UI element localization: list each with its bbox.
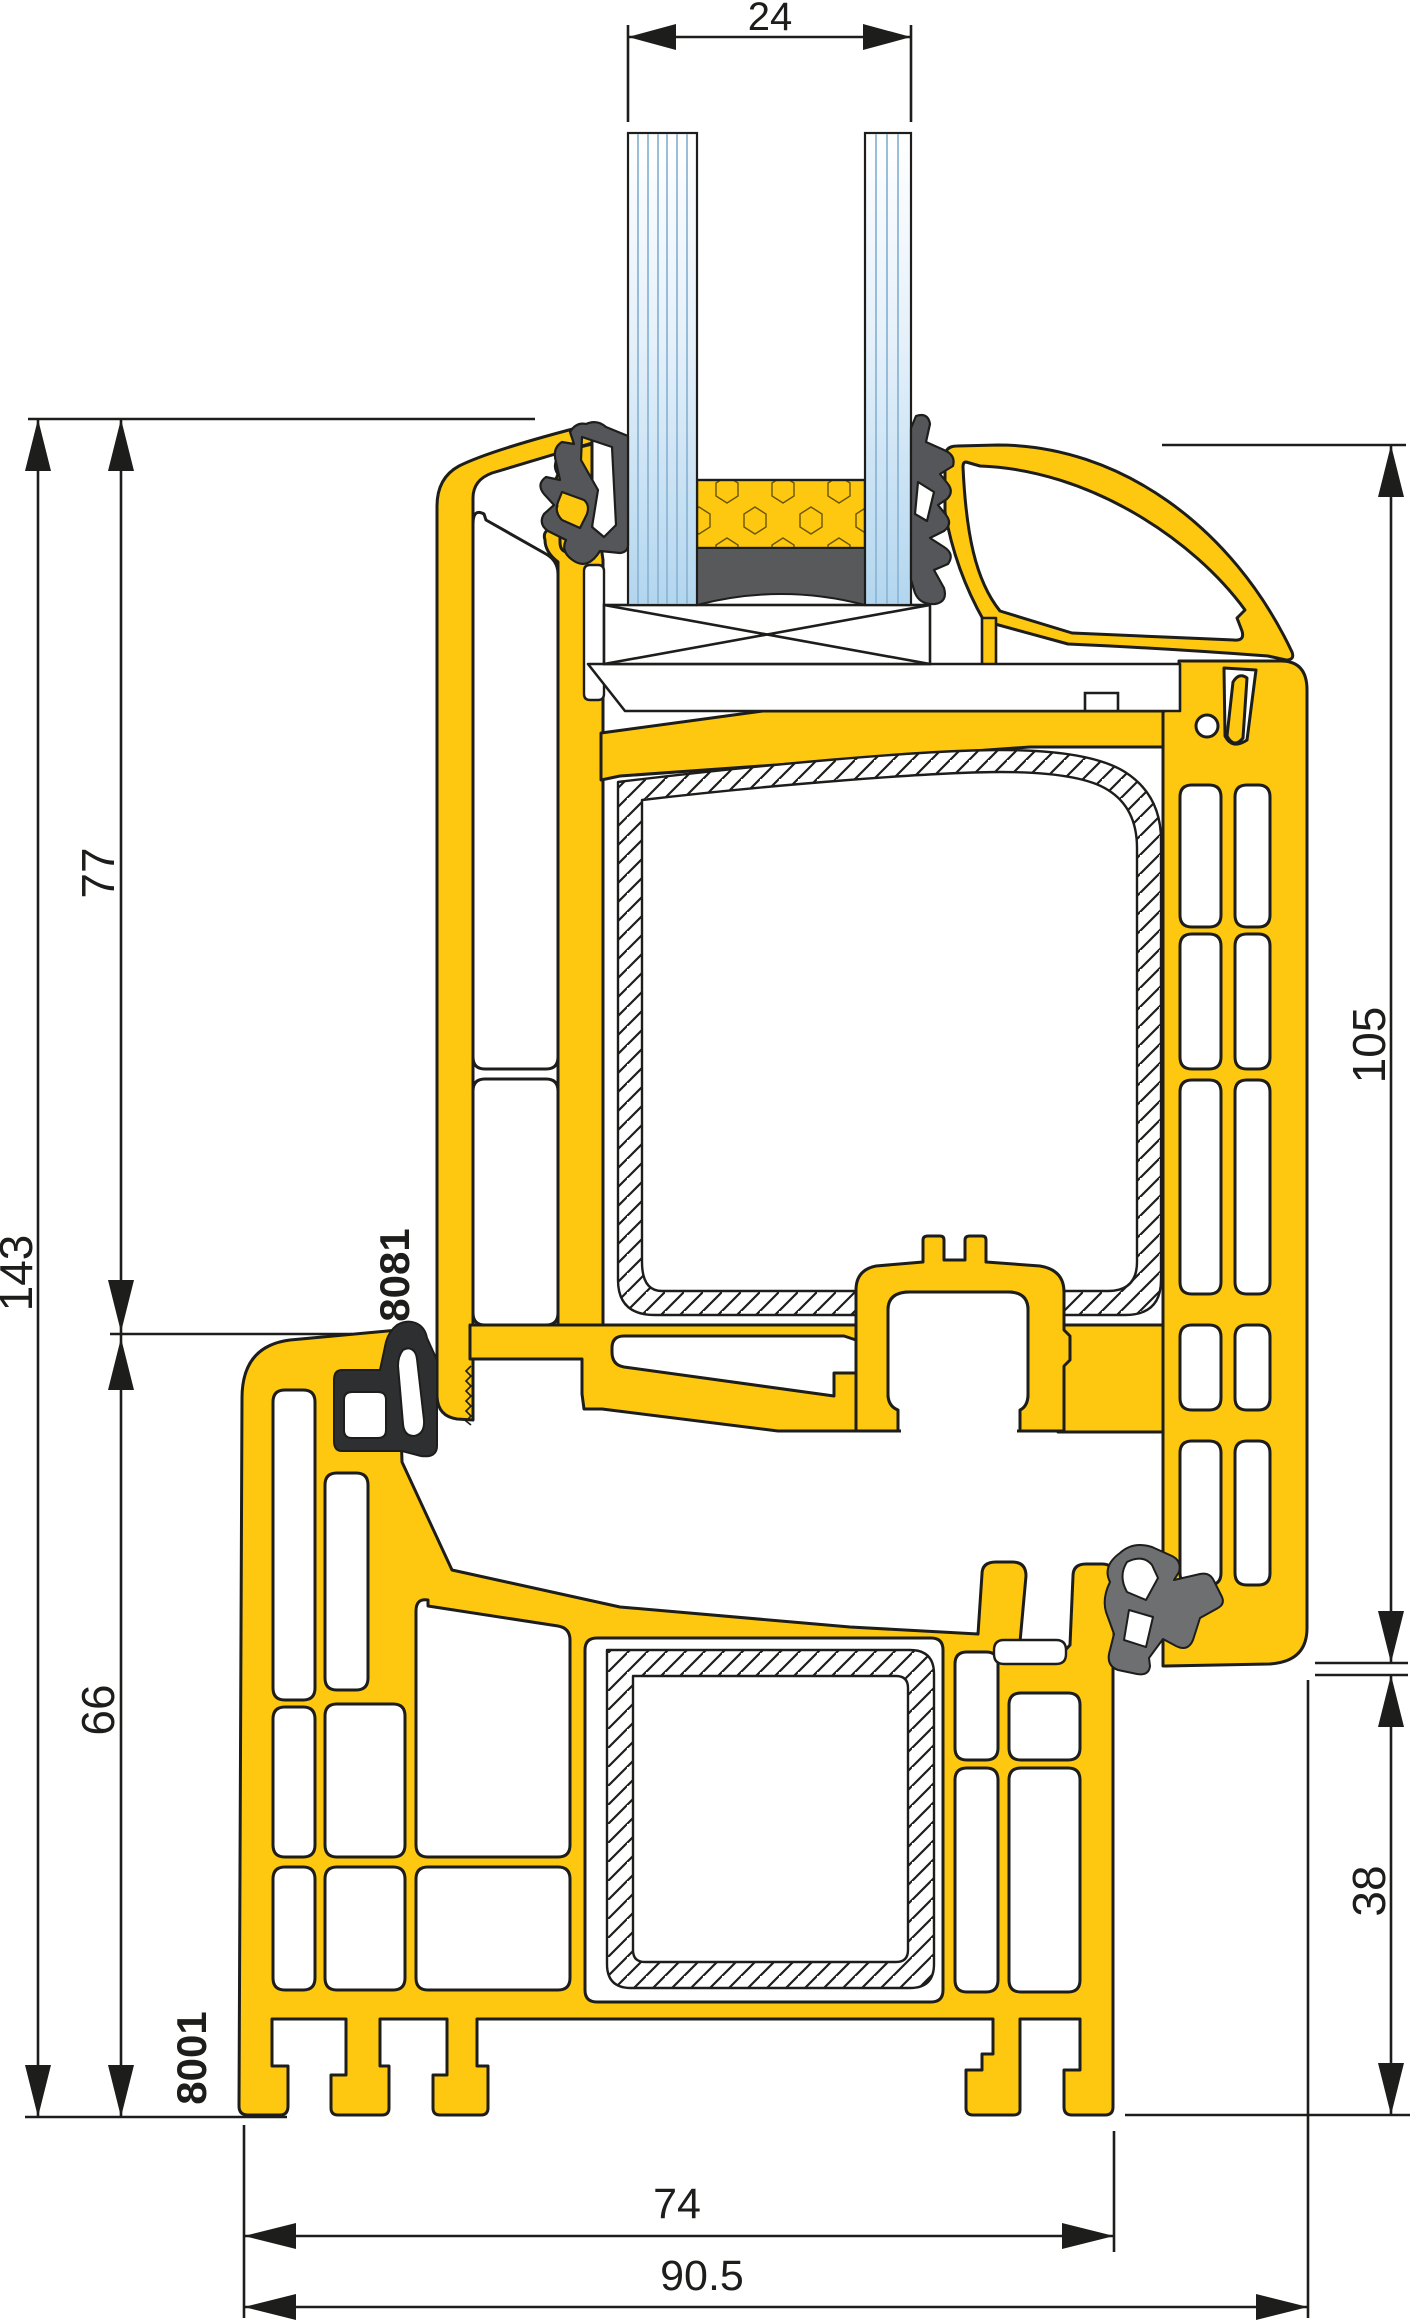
svg-text:74: 74: [653, 2180, 701, 2228]
svg-text:8081: 8081: [371, 1228, 418, 1321]
svg-text:66: 66: [72, 1684, 124, 1735]
svg-text:38: 38: [1343, 1865, 1395, 1916]
svg-text:143: 143: [0, 1235, 42, 1312]
svg-text:105: 105: [1343, 1007, 1395, 1084]
svg-text:24: 24: [748, 0, 793, 39]
svg-text:90.5: 90.5: [660, 2252, 744, 2300]
svg-text:77: 77: [72, 847, 124, 898]
svg-text:8001: 8001: [168, 2011, 215, 2104]
